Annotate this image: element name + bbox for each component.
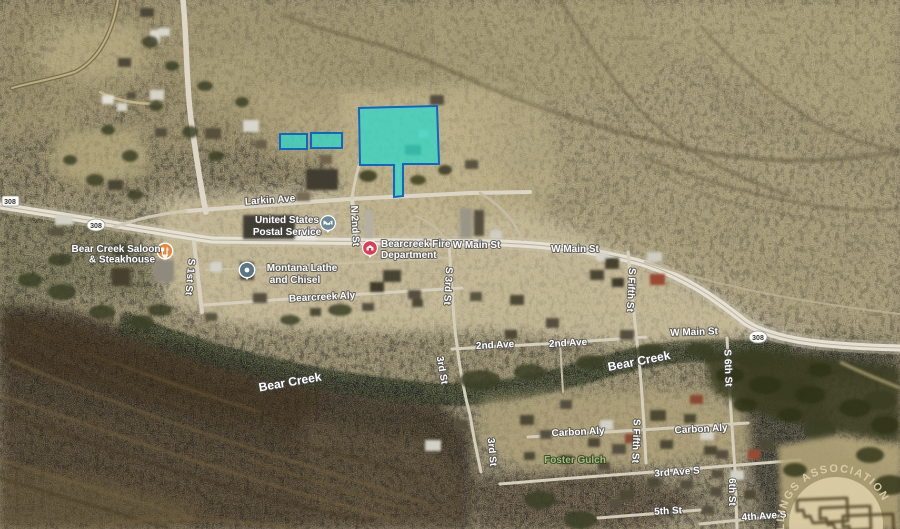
svg-text:W Main St: W Main St [551,244,599,255]
svg-text:S Fifth St: S Fifth St [624,268,637,313]
svg-text:Bear Creek Saloon: Bear Creek Saloon [72,244,161,255]
svg-text:N 2nd St: N 2nd St [348,205,361,247]
svg-text:S 6th St: S 6th St [721,349,733,387]
svg-text:Foster Gulch: Foster Gulch [544,455,606,466]
svg-text:W Main St: W Main St [453,240,501,251]
svg-text:and Chisel: and Chisel [270,275,321,286]
svg-text:S Fifth St: S Fifth St [629,419,642,464]
svg-text:Department: Department [381,250,437,261]
svg-text:308: 308 [4,199,16,206]
svg-text:& Steakhouse: & Steakhouse [89,255,156,266]
svg-text:308: 308 [752,335,764,342]
svg-text:5th St: 5th St [654,505,683,517]
svg-text:Bearcreek Fire: Bearcreek Fire [381,239,451,250]
svg-text:6th St: 6th St [726,478,737,506]
svg-text:2nd Ave: 2nd Ave [549,337,588,350]
svg-text:308: 308 [90,223,102,230]
svg-text:S 3rd St: S 3rd St [441,267,454,306]
svg-text:Montana Lathe: Montana Lathe [267,263,338,274]
svg-text:United States: United States [255,215,319,226]
svg-text:Postal Service: Postal Service [253,227,322,238]
svg-text:2nd Ave: 2nd Ave [476,339,515,352]
svg-text:W Main St: W Main St [670,326,719,339]
